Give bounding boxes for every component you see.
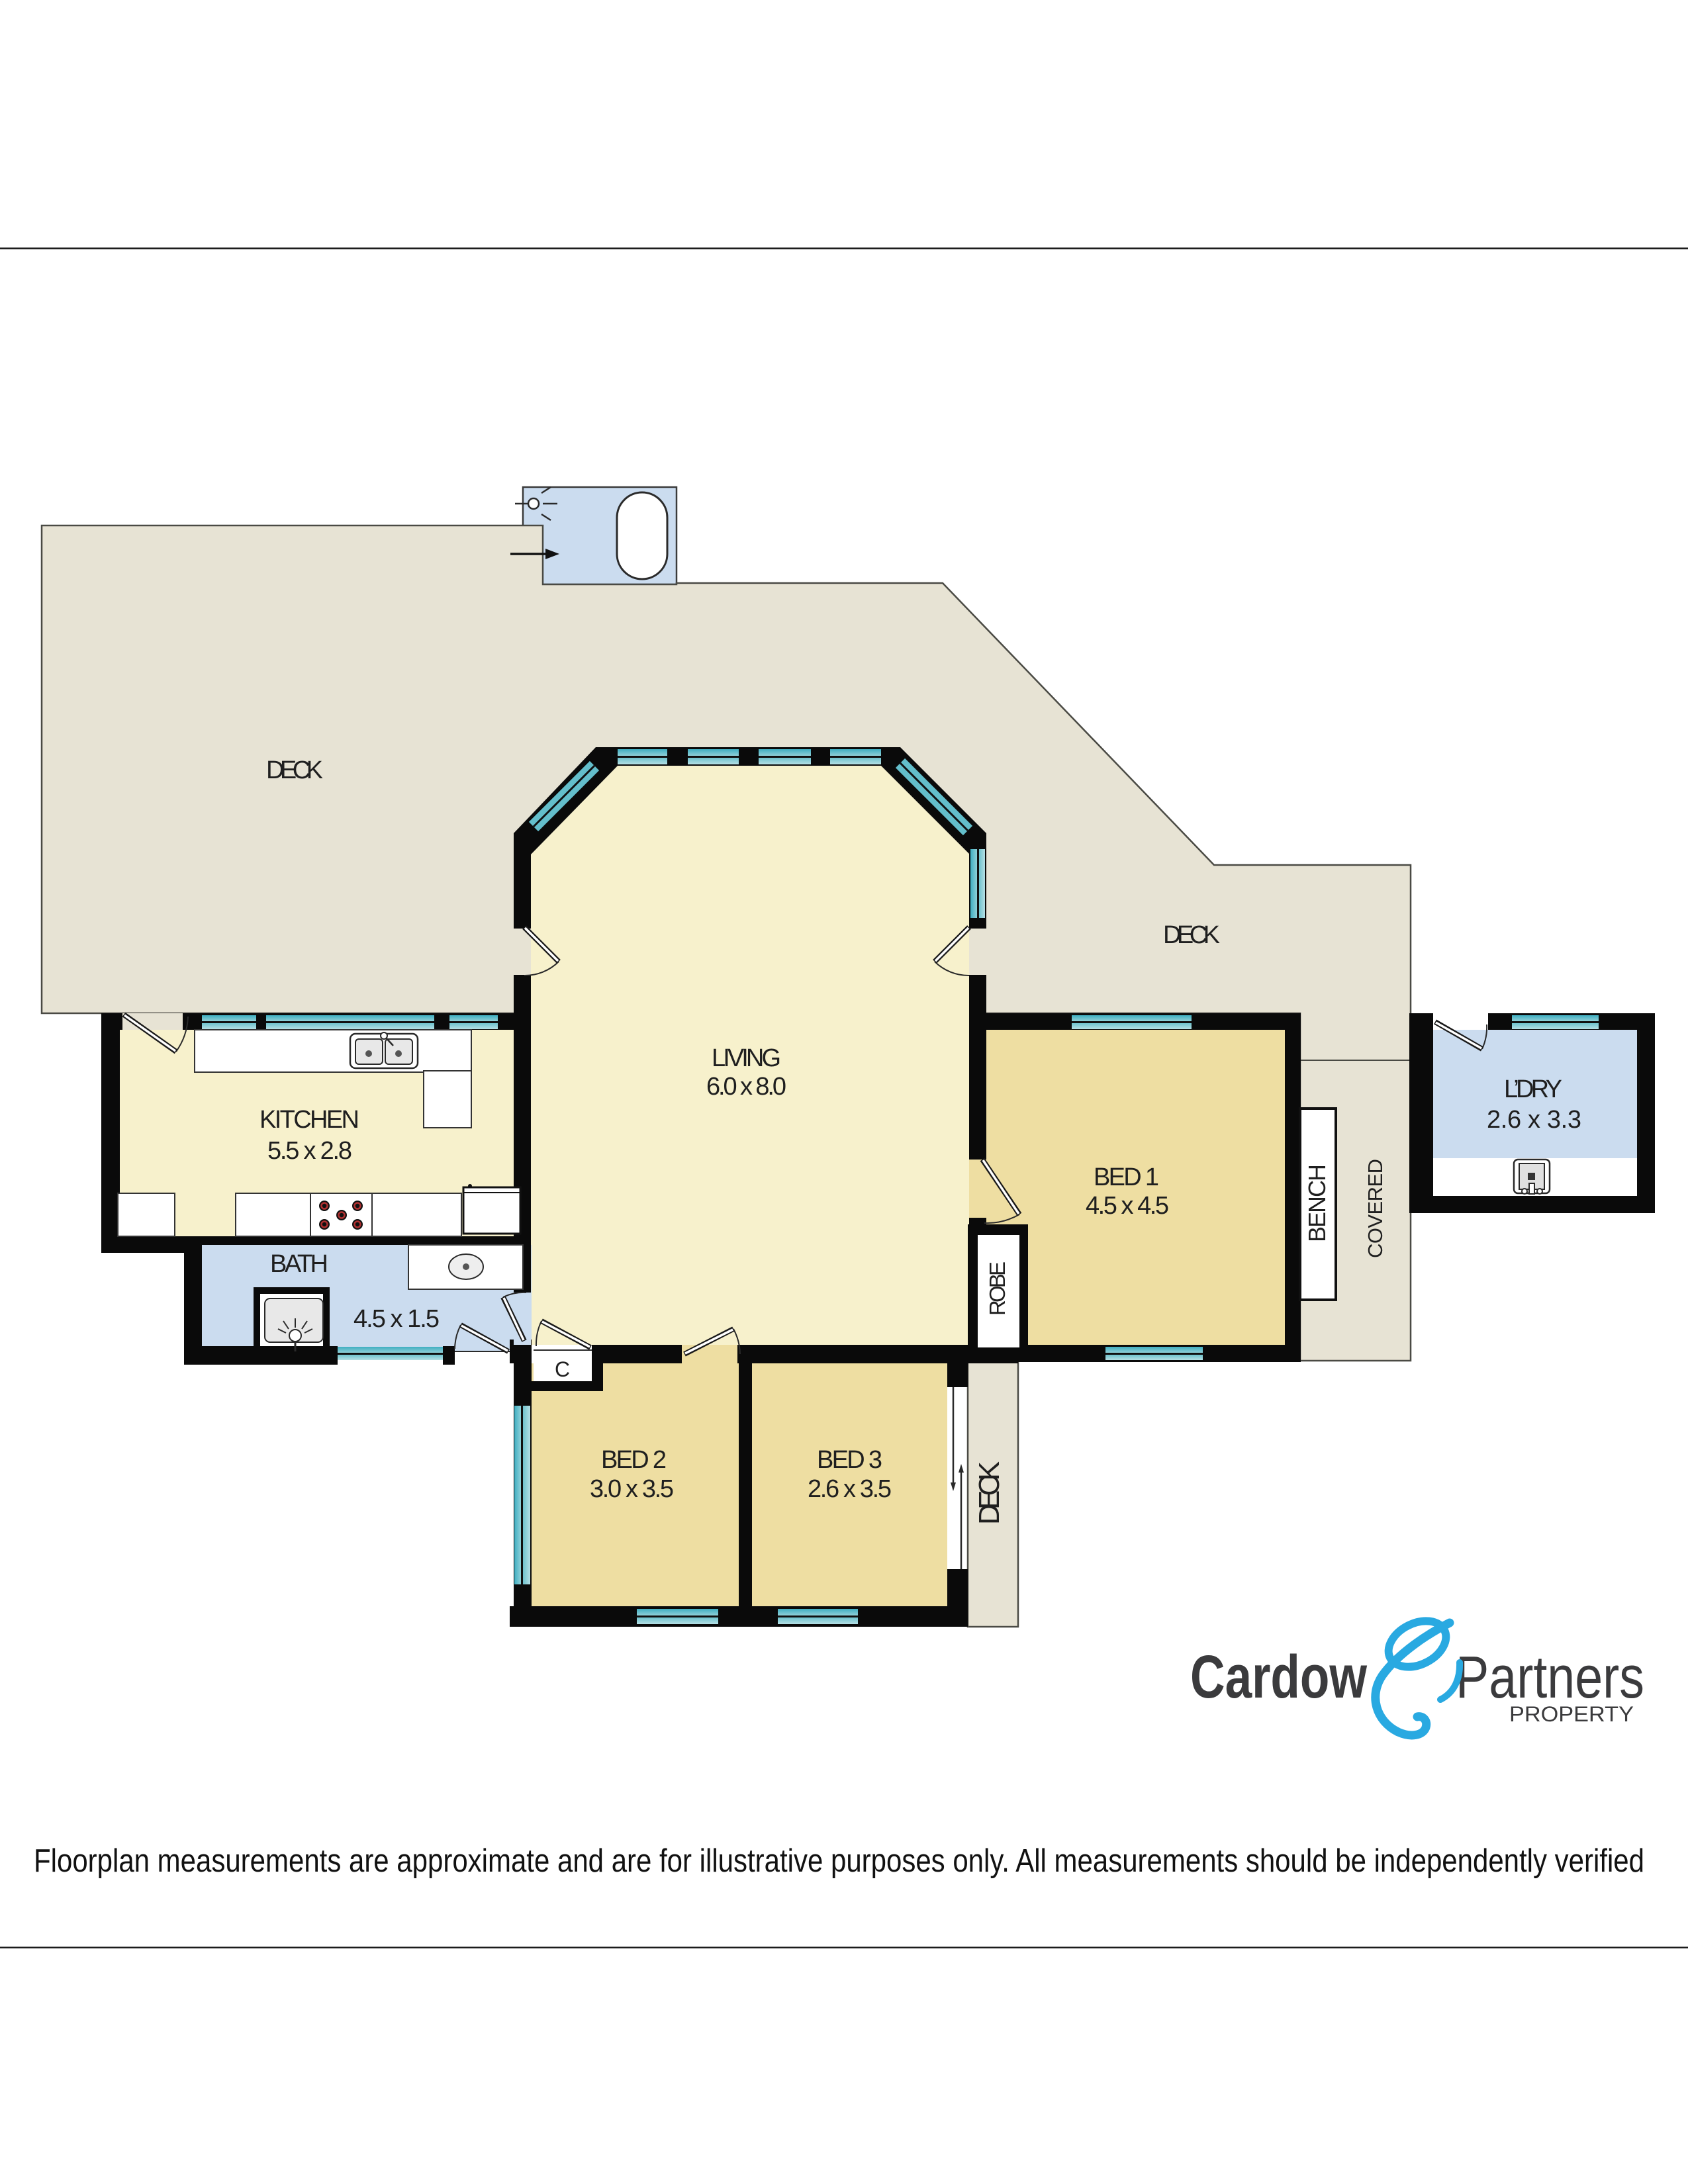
svg-text:4.5 x 1.5: 4.5 x 1.5 (353, 1305, 440, 1333)
svg-text:2.6 x 3.3: 2.6 x 3.3 (1487, 1106, 1581, 1134)
svg-text:BED 1: BED 1 (1094, 1163, 1159, 1191)
svg-text:DECK: DECK (973, 1461, 1006, 1525)
svg-text:BATH: BATH (270, 1250, 328, 1278)
svg-text:Cardow: Cardow (1190, 1643, 1367, 1711)
svg-text:ROBE: ROBE (985, 1261, 1009, 1316)
svg-text:Floorplan measurements are app: Floorplan measurements are approximate a… (34, 1843, 1644, 1879)
svg-text:PROPERTY: PROPERTY (1509, 1702, 1634, 1726)
svg-text:BENCH: BENCH (1303, 1164, 1331, 1242)
svg-text:KITCHEN: KITCHEN (259, 1106, 359, 1134)
svg-text:3.0 x 3.5: 3.0 x 3.5 (590, 1475, 674, 1503)
svg-text:BED 2: BED 2 (601, 1446, 667, 1474)
svg-text:5.5 x 2.8: 5.5 x 2.8 (267, 1137, 352, 1165)
svg-text:Partners: Partners (1456, 1645, 1644, 1711)
svg-text:6.0 x 8.0: 6.0 x 8.0 (706, 1073, 786, 1101)
svg-text:DECK: DECK (266, 756, 323, 784)
svg-text:LIVING: LIVING (712, 1044, 781, 1072)
svg-text:DECK: DECK (1163, 921, 1220, 949)
svg-text:COVERED: COVERED (1364, 1159, 1387, 1258)
svg-text:BED 3: BED 3 (817, 1446, 882, 1474)
svg-text:2.6 x 3.5: 2.6 x 3.5 (808, 1475, 892, 1503)
svg-text:4.5 x 4.5: 4.5 x 4.5 (1086, 1192, 1169, 1220)
svg-text:L’DRY: L’DRY (1504, 1075, 1562, 1103)
svg-text:C: C (555, 1357, 570, 1381)
